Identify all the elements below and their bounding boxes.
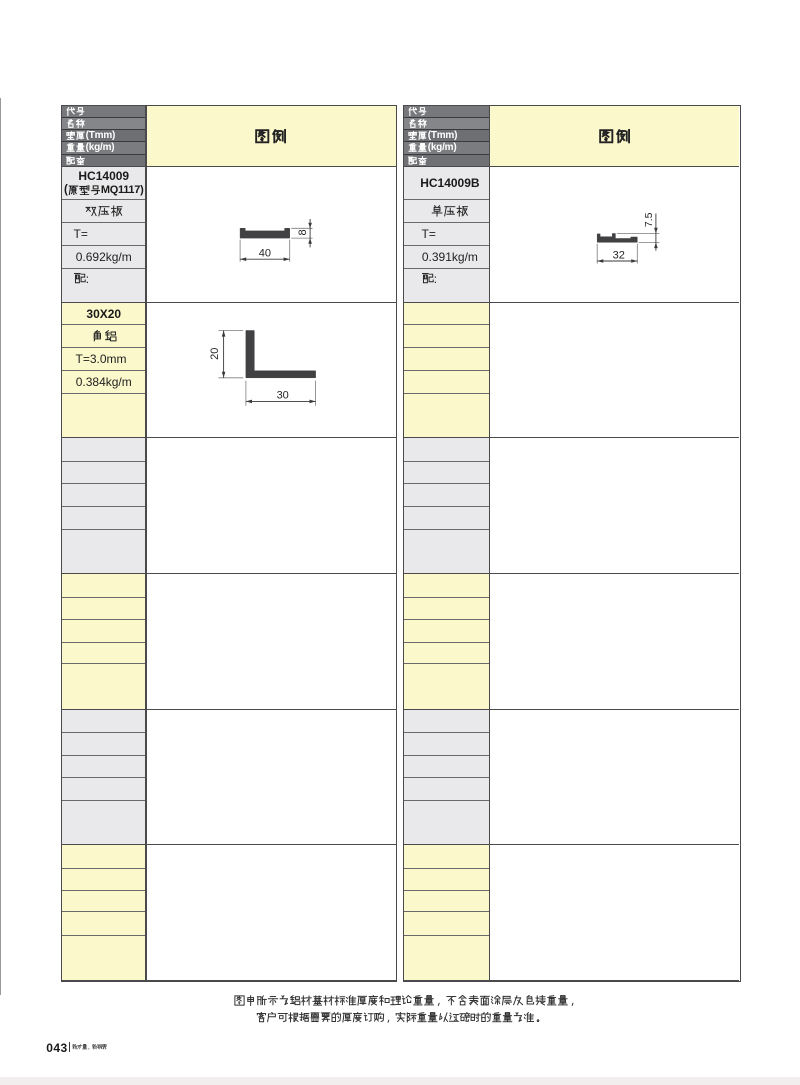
svg-text:40: 40	[259, 248, 271, 260]
svg-text:20: 20	[209, 348, 221, 360]
svg-text:32: 32	[613, 250, 625, 262]
svg-text:30: 30	[277, 390, 289, 402]
svg-text:8: 8	[297, 229, 309, 235]
svg-text:7.5: 7.5	[643, 212, 655, 227]
